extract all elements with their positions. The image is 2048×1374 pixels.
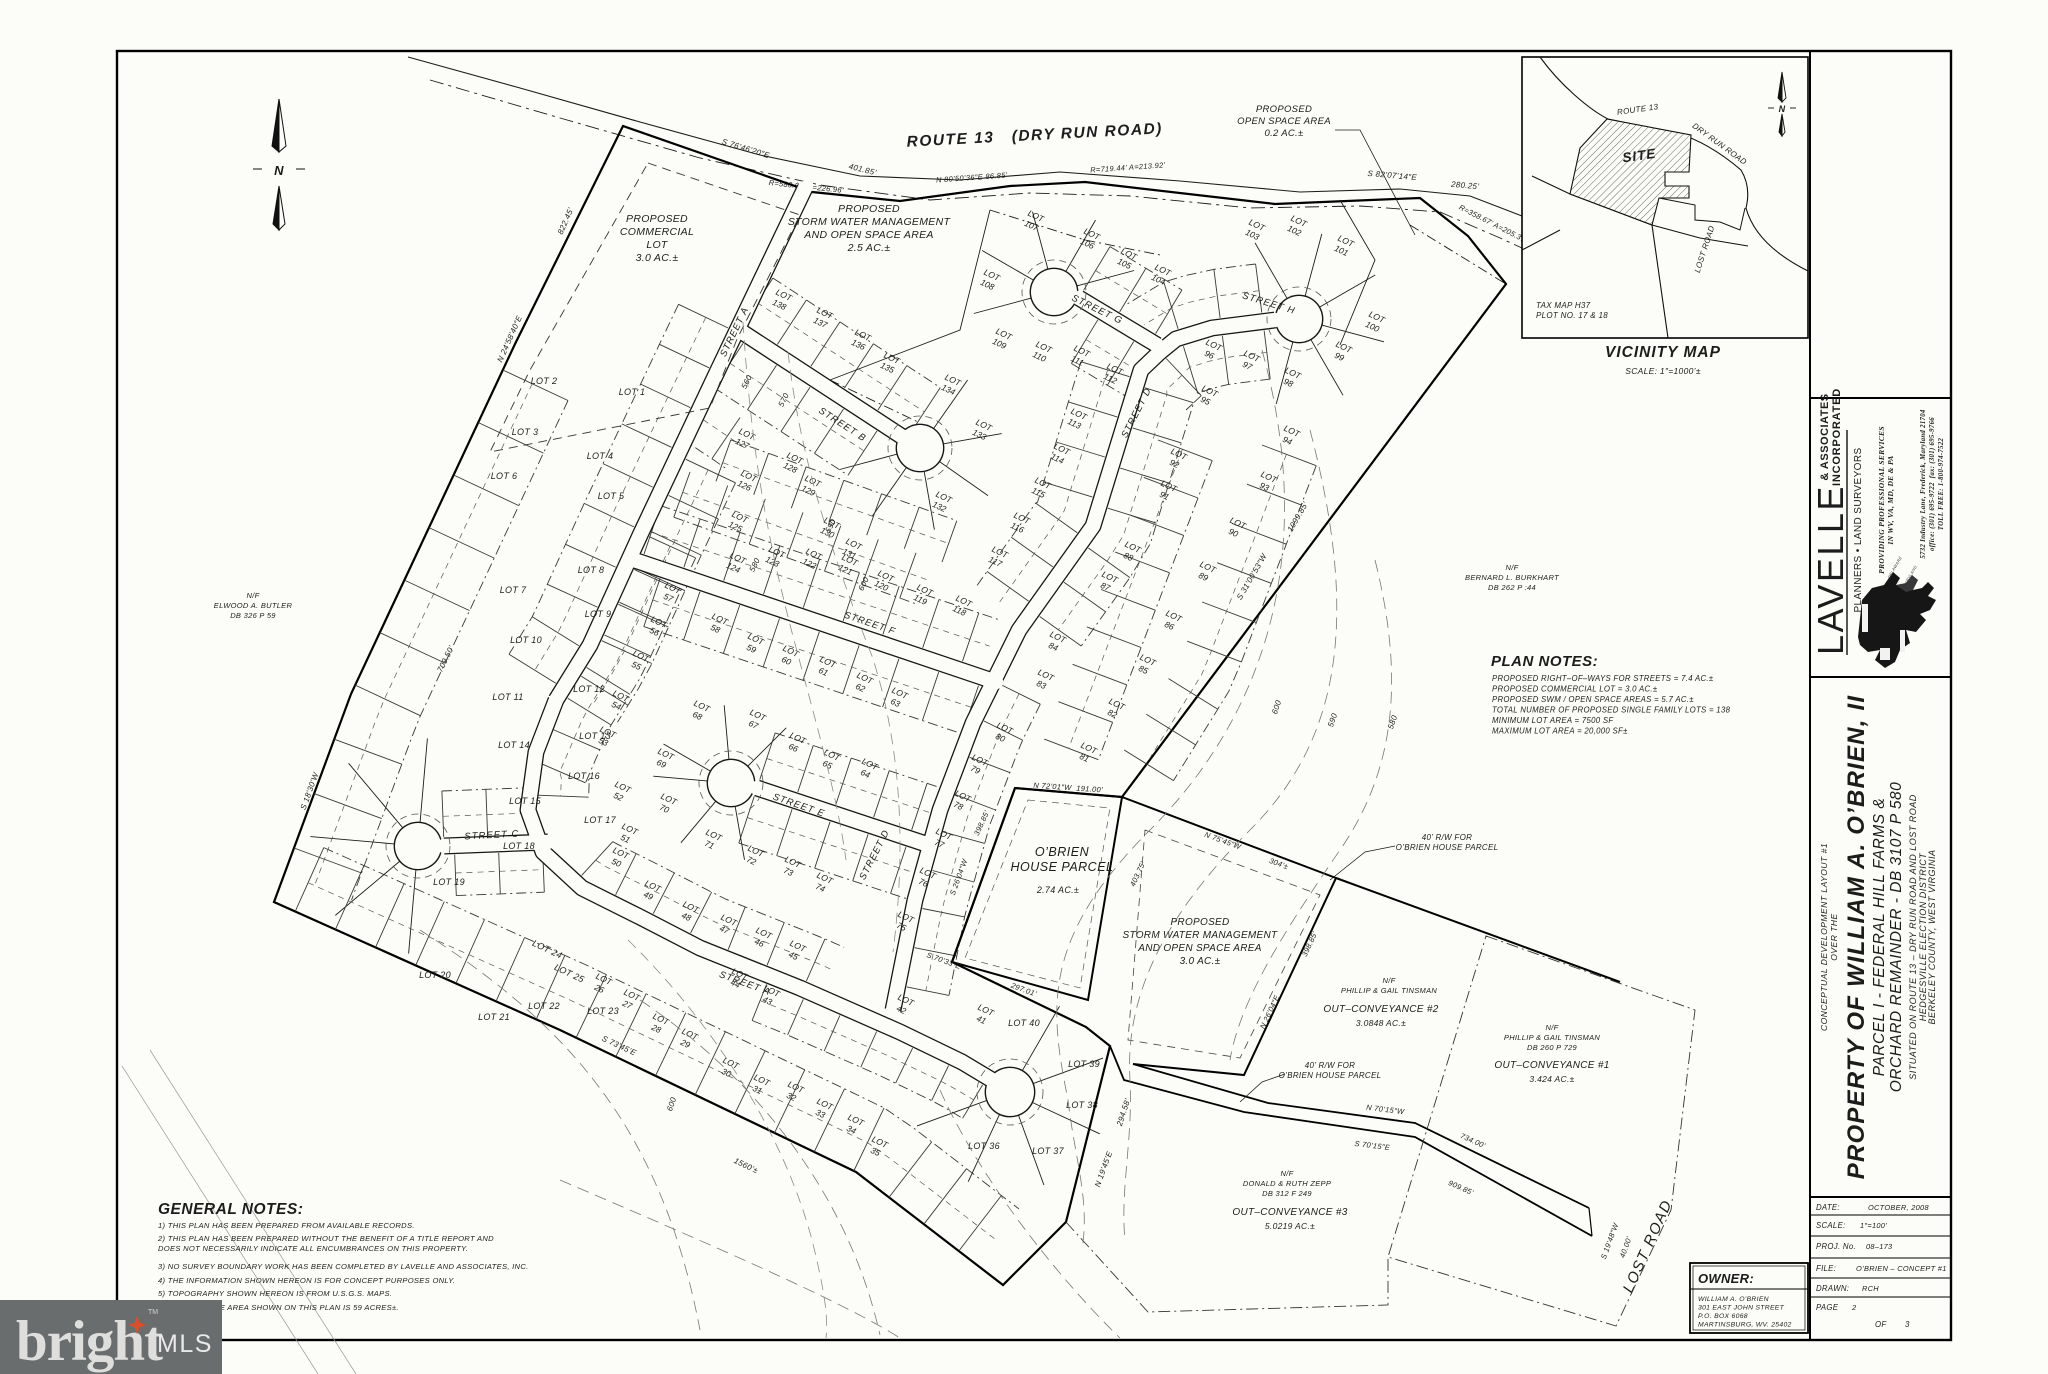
svg-text:bright: bright bbox=[16, 1310, 163, 1373]
svg-text:PROPOSED: PROPOSED bbox=[838, 203, 900, 215]
svg-text:TOLL FREE: 1-800-974-7522: TOLL FREE: 1-800-974-7522 bbox=[1938, 437, 1945, 530]
svg-text:3.0848 AC.±: 3.0848 AC.± bbox=[1356, 1018, 1406, 1028]
svg-text:LOT 16: LOT 16 bbox=[568, 771, 600, 781]
svg-text:HOUSE PARCEL: HOUSE PARCEL bbox=[1010, 860, 1113, 874]
svg-text:WILLIAM A. O’BRIEN: WILLIAM A. O’BRIEN bbox=[1698, 1296, 1769, 1303]
svg-text:COMMERCIAL: COMMERCIAL bbox=[620, 226, 694, 238]
svg-text:PAGE: PAGE bbox=[1816, 1303, 1839, 1312]
svg-text:BERNARD L. BURKHART: BERNARD L. BURKHART bbox=[1465, 573, 1560, 582]
svg-text:STORM WATER MANAGEMENT: STORM WATER MANAGEMENT bbox=[1123, 930, 1279, 941]
svg-text:LOT 1: LOT 1 bbox=[619, 387, 646, 397]
svg-text:AND OPEN SPACE AREA: AND OPEN SPACE AREA bbox=[803, 229, 933, 241]
svg-text:TAX MAP H37: TAX MAP H37 bbox=[1536, 301, 1591, 310]
svg-text:LOT 37: LOT 37 bbox=[1032, 1146, 1065, 1156]
svg-text:1″=100’: 1″=100’ bbox=[1860, 1221, 1887, 1230]
svg-text:LOT 6: LOT 6 bbox=[491, 471, 518, 481]
svg-text:0.2 AC.±: 0.2 AC.± bbox=[1265, 128, 1304, 139]
svg-text:OUT–CONVEYANCE #3: OUT–CONVEYANCE #3 bbox=[1232, 1207, 1347, 1218]
svg-text:LOT 14: LOT 14 bbox=[498, 740, 530, 750]
svg-text:SCALE: 1″=1000’±: SCALE: 1″=1000’± bbox=[1625, 366, 1701, 376]
svg-text:OF: OF bbox=[1875, 1320, 1887, 1329]
svg-text:PROJ. No.: PROJ. No. bbox=[1816, 1242, 1856, 1251]
svg-text:DB 260 P 729: DB 260 P 729 bbox=[1527, 1043, 1578, 1052]
svg-text:PROPERTY OF WILLIAM A. O’BRIEN: PROPERTY OF WILLIAM A. O’BRIEN, II bbox=[1843, 695, 1870, 1180]
svg-text:LOT 20: LOT 20 bbox=[419, 970, 451, 980]
svg-text:ORCHARD REMAINDER - DB 3107 P: ORCHARD REMAINDER - DB 3107 P 580 bbox=[1888, 782, 1905, 1093]
svg-text:LOT 8: LOT 8 bbox=[578, 565, 605, 575]
svg-text:O’BRIEN HOUSE PARCEL: O’BRIEN HOUSE PARCEL bbox=[1279, 1071, 1382, 1080]
svg-text:VICINITY MAP: VICINITY MAP bbox=[1605, 344, 1721, 361]
svg-text:DB 326 P 59: DB 326 P 59 bbox=[230, 611, 276, 620]
svg-text:3) NO SURVEY BOUNDARY WORK HA: 3) NO SURVEY BOUNDARY WORK HAS BEEN COMP… bbox=[158, 1262, 529, 1271]
svg-text:PLAN NOTES:: PLAN NOTES: bbox=[1491, 653, 1598, 670]
svg-text:BERKELEY COUNTY, WEST VIRGINIA: BERKELEY COUNTY, WEST VIRGINIA bbox=[1927, 849, 1937, 1024]
svg-text:LOT 39: LOT 39 bbox=[1068, 1059, 1100, 1069]
svg-text:2) THIS PLAN HAS BEEN PREPARE: 2) THIS PLAN HAS BEEN PREPARED WITHOUT T… bbox=[157, 1234, 494, 1243]
svg-text:40’ R/W FOR: 40’ R/W FOR bbox=[1422, 833, 1472, 842]
svg-text:OWNER:: OWNER: bbox=[1698, 1271, 1754, 1286]
svg-text:N: N bbox=[1779, 104, 1786, 114]
svg-text:LOT 5: LOT 5 bbox=[598, 491, 625, 501]
svg-text:2.5 AC.±: 2.5 AC.± bbox=[847, 242, 891, 254]
svg-text:O’BRIEN: O’BRIEN bbox=[1035, 845, 1090, 859]
svg-text:5) TOPOGRAPHY SHOWN HEREON IS: 5) TOPOGRAPHY SHOWN HEREON IS FROM U.S.G… bbox=[158, 1289, 392, 1298]
svg-text:PROPOSED RIGHT–OF–WAYS FOR STR: PROPOSED RIGHT–OF–WAYS FOR STREETS = 7.4… bbox=[1492, 674, 1714, 683]
svg-text:IN WV, VA, MD, DE & PA: IN WV, VA, MD, DE & PA bbox=[1886, 455, 1895, 545]
svg-text:MINIMUM LOT AREA = 7500 SF: MINIMUM LOT AREA = 7500 SF bbox=[1492, 716, 1614, 725]
svg-text:N/F: N/F bbox=[247, 591, 260, 600]
svg-text:LOT 22: LOT 22 bbox=[528, 1001, 560, 1011]
svg-text:LOT 2: LOT 2 bbox=[531, 376, 558, 386]
svg-text:MAXIMUM LOT AREA = 20,000 SF±: MAXIMUM LOT AREA = 20,000 SF± bbox=[1492, 727, 1628, 736]
svg-text:OPEN SPACE AREA: OPEN SPACE AREA bbox=[1237, 116, 1331, 127]
svg-text:LOT 3: LOT 3 bbox=[512, 427, 539, 437]
svg-text:O’BRIEN – CONCEPT #1: O’BRIEN – CONCEPT #1 bbox=[1856, 1264, 1947, 1273]
svg-text:DB 312 F 249: DB 312 F 249 bbox=[1262, 1189, 1312, 1198]
svg-text:OCTOBER, 2008: OCTOBER, 2008 bbox=[1868, 1203, 1929, 1212]
svg-text:P.O. BOX 6068: P.O. BOX 6068 bbox=[1698, 1313, 1748, 1320]
svg-text:STORM WATER MANAGEMENT: STORM WATER MANAGEMENT bbox=[788, 216, 952, 228]
svg-text:RCH: RCH bbox=[1862, 1284, 1879, 1293]
svg-text:3.0 AC.±: 3.0 AC.± bbox=[636, 252, 679, 264]
svg-text:SITUATED ON ROUTE 13 – DRY RUN: SITUATED ON ROUTE 13 – DRY RUN ROAD AND … bbox=[1908, 794, 1918, 1080]
svg-text:LOT 18: LOT 18 bbox=[503, 841, 535, 851]
svg-text:N/F: N/F bbox=[1506, 563, 1519, 572]
svg-text:OVER THE: OVER THE bbox=[1829, 913, 1839, 960]
svg-text:N/F: N/F bbox=[1383, 976, 1396, 985]
svg-text:PARCEL I - FEDERAL HILL FARMS: PARCEL I - FEDERAL HILL FARMS & bbox=[1871, 798, 1888, 1077]
svg-text:301 EAST JOHN STREET: 301 EAST JOHN STREET bbox=[1698, 1305, 1785, 1312]
svg-text:PLANNERS • LAND SURVEYORS: PLANNERS • LAND SURVEYORS bbox=[1853, 447, 1864, 612]
svg-text:OUT–CONVEYANCE #2: OUT–CONVEYANCE #2 bbox=[1323, 1004, 1438, 1015]
svg-text:N: N bbox=[274, 163, 284, 178]
svg-text:PROPOSED COMMERCIAL LOT = 3.0: PROPOSED COMMERCIAL LOT = 3.0 AC.± bbox=[1492, 685, 1658, 694]
svg-text:5732 Industry Lane, Frederick,: 5732 Industry Lane, Frederick, Maryland … bbox=[1920, 409, 1927, 559]
svg-text:GENERAL NOTES:: GENERAL NOTES: bbox=[158, 1201, 303, 1218]
svg-text:MARTINSBURG, WV. 25402: MARTINSBURG, WV. 25402 bbox=[1698, 1322, 1792, 1329]
svg-text:PLOT NO. 17 & 18: PLOT NO. 17 & 18 bbox=[1536, 311, 1608, 320]
svg-text:CONCEPTUAL DEVELOPMENT LAYOUT: CONCEPTUAL DEVELOPMENT LAYOUT #1 bbox=[1819, 843, 1829, 1031]
svg-text:3.424 AC.±: 3.424 AC.± bbox=[1529, 1074, 1574, 1084]
svg-text:O’BRIEN HOUSE PARCEL: O’BRIEN HOUSE PARCEL bbox=[1396, 843, 1499, 852]
svg-text:TM: TM bbox=[148, 1309, 158, 1316]
svg-text:4) THE INFORMATION SHOWN HERE: 4) THE INFORMATION SHOWN HEREON IS FOR C… bbox=[158, 1276, 455, 1285]
svg-text:MLS: MLS bbox=[157, 1330, 213, 1358]
svg-text:TOTAL NUMBER OF PROPOSED SINGL: TOTAL NUMBER OF PROPOSED SINGLE FAMILY L… bbox=[1492, 706, 1731, 715]
svg-text:LOT 17: LOT 17 bbox=[584, 815, 617, 825]
svg-text:LOT 38: LOT 38 bbox=[1066, 1100, 1098, 1110]
svg-text:2: 2 bbox=[1851, 1303, 1856, 1312]
svg-text:40’ R/W FOR: 40’ R/W FOR bbox=[1305, 1061, 1355, 1070]
svg-text:PHILLIP & GAIL TINSMAN: PHILLIP & GAIL TINSMAN bbox=[1341, 986, 1437, 995]
svg-text:N/F: N/F bbox=[1546, 1023, 1559, 1032]
svg-text:LOT 15: LOT 15 bbox=[509, 796, 542, 806]
svg-text:LOT 36: LOT 36 bbox=[968, 1141, 1000, 1151]
svg-text:OUT–CONVEYANCE #1: OUT–CONVEYANCE #1 bbox=[1494, 1060, 1609, 1071]
svg-text:ELWOOD A. BUTLER: ELWOOD A. BUTLER bbox=[214, 601, 293, 610]
svg-text:DONALD & RUTH ZEPP: DONALD & RUTH ZEPP bbox=[1243, 1179, 1331, 1188]
svg-text:DRAWN:: DRAWN: bbox=[1816, 1284, 1849, 1293]
svg-text:LOT 4: LOT 4 bbox=[587, 451, 614, 461]
svg-text:2.74 AC.±: 2.74 AC.± bbox=[1036, 885, 1079, 895]
svg-text:SCALE:: SCALE: bbox=[1816, 1221, 1846, 1230]
svg-text:DOES NOT NECESSARILY INDICATE: DOES NOT NECESSARILY INDICATE ALL ENCUMB… bbox=[158, 1244, 468, 1253]
svg-text:PHILLIP & GAIL TINSMAN: PHILLIP & GAIL TINSMAN bbox=[1504, 1033, 1600, 1042]
svg-text:LOT 23: LOT 23 bbox=[587, 1006, 619, 1016]
svg-text:FILE:: FILE: bbox=[1816, 1264, 1836, 1273]
svg-text:DB 262 P :44: DB 262 P :44 bbox=[1488, 583, 1536, 592]
svg-text:LOT 9: LOT 9 bbox=[585, 609, 612, 619]
svg-text:& ASSOCIATES: & ASSOCIATES bbox=[1819, 393, 1831, 480]
svg-text:PROPOSED: PROPOSED bbox=[1170, 917, 1229, 928]
svg-text:LOT 7: LOT 7 bbox=[500, 585, 527, 595]
svg-text:LOT 11: LOT 11 bbox=[492, 692, 523, 702]
svg-text:PROPOSED: PROPOSED bbox=[1256, 104, 1312, 115]
svg-text:N/F: N/F bbox=[1281, 1169, 1294, 1178]
svg-text:5.0219 AC.±: 5.0219 AC.± bbox=[1265, 1221, 1315, 1231]
svg-text:08–173: 08–173 bbox=[1866, 1242, 1893, 1251]
svg-text:AND OPEN SPACE AREA: AND OPEN SPACE AREA bbox=[1137, 943, 1262, 954]
svg-text:3: 3 bbox=[1905, 1320, 1910, 1329]
svg-text:DATE:: DATE: bbox=[1816, 1203, 1840, 1212]
svg-text:PROPOSED: PROPOSED bbox=[626, 213, 688, 225]
svg-text:LOT 21: LOT 21 bbox=[478, 1012, 510, 1022]
svg-text:PROPOSED SWM / OPEN SPACE AREA: PROPOSED SWM / OPEN SPACE AREAS = 5.7 AC… bbox=[1492, 695, 1694, 704]
svg-text:PROVIDING PROFESSIONAL SERVICE: PROVIDING PROFESSIONAL SERVICES bbox=[1877, 426, 1886, 574]
svg-text:office: (301) 695-9722 fax: (: office: (301) 695-9722 fax: (301) 695-97… bbox=[1929, 417, 1936, 551]
svg-text:INCORPORATED: INCORPORATED bbox=[1831, 388, 1843, 486]
svg-text:1) THIS PLAN HAS BEEN PREPARE: 1) THIS PLAN HAS BEEN PREPARED FROM AVAI… bbox=[158, 1221, 415, 1230]
svg-text:3.0 AC.±: 3.0 AC.± bbox=[1180, 956, 1221, 967]
svg-text:LOT 40: LOT 40 bbox=[1008, 1018, 1040, 1028]
svg-text:LOT 10: LOT 10 bbox=[510, 635, 542, 645]
svg-text:LOT: LOT bbox=[646, 239, 669, 251]
svg-text:LOT 19: LOT 19 bbox=[433, 877, 465, 887]
svg-text:LOT 12: LOT 12 bbox=[573, 684, 605, 694]
svg-text:LAVELLE: LAVELLE bbox=[1810, 484, 1851, 655]
